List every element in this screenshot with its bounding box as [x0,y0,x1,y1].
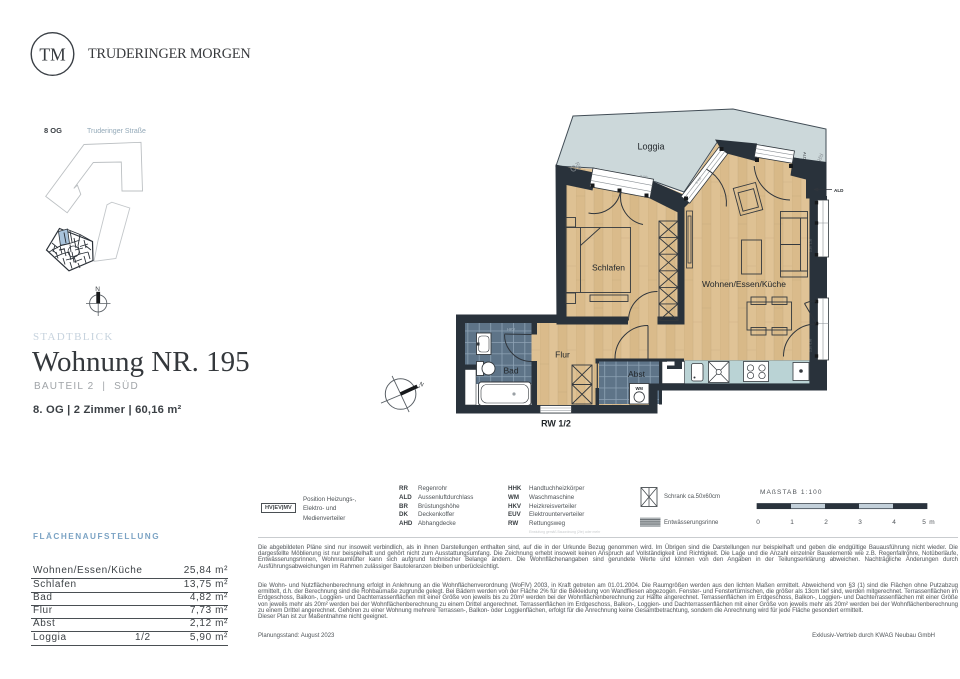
svg-text:WM: WM [635,386,643,391]
svg-text:3: 3 [858,519,862,526]
svg-text:N: N [95,286,100,293]
svg-text:m: m [929,519,934,526]
svg-text:4: 4 [892,519,896,526]
svg-text:8 OG: 8 OG [44,126,62,135]
svg-text:1: 1 [790,519,794,526]
svg-text:RW 1/2: RW 1/2 [541,419,571,429]
svg-text:ALD: ALD [834,188,844,193]
svg-text:0: 0 [756,519,760,526]
svg-text:Wohnen/Essen/Küche: Wohnen/Essen/Küche [702,279,786,289]
svg-text:ALD: ALD [803,152,808,160]
svg-text:5: 5 [922,519,926,526]
svg-text:Bad: Bad [503,366,518,376]
svg-text:Loggia: Loggia [637,142,664,152]
svg-text:2,26 0,88: 2,26 0,88 [809,338,813,352]
svg-text:2: 2 [824,519,828,526]
svg-text:Truderinger Straße: Truderinger Straße [87,128,146,135]
svg-text:Abst: Abst [628,369,646,379]
svg-text:2,26 1,35: 2,26 1,35 [809,238,813,252]
svg-text:HKV: HKV [507,327,516,332]
svg-text:Flur: Flur [555,350,570,360]
svg-text:TM: TM [39,45,66,65]
svg-text:Schlafen: Schlafen [592,263,625,273]
